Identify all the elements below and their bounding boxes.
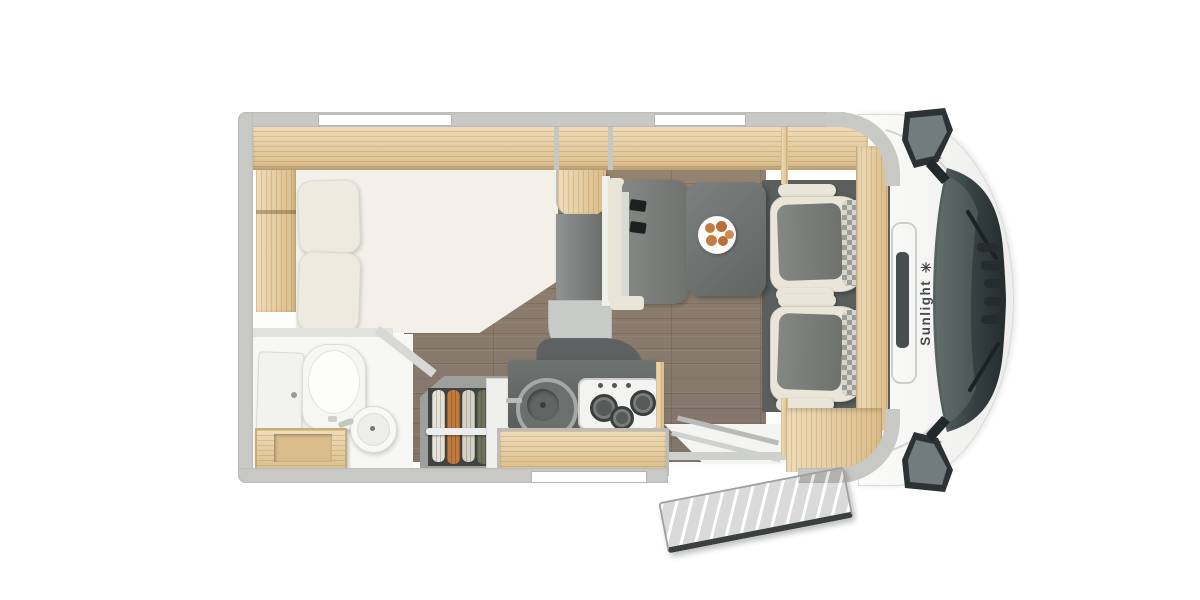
toilet-lid: [308, 350, 360, 414]
brand-lettering: Sunlight ✳: [904, 236, 948, 366]
hanging-clothes-orange: [447, 390, 460, 464]
locker-divider: [554, 126, 559, 170]
burner-icon: [610, 406, 634, 430]
bread-roll: [706, 235, 717, 246]
kitchen-end-divider: [656, 362, 664, 428]
locker-divider: [608, 126, 613, 170]
hanging-clothes-white: [432, 390, 445, 462]
vanity-recess: [274, 434, 332, 462]
bench-base: [610, 296, 644, 310]
pillow: [297, 179, 362, 255]
window-rear-top: [318, 114, 452, 126]
seatbelt-buckle-icon: [629, 199, 646, 212]
cab-overhang-frame: [856, 146, 888, 434]
rear-shelf-divider: [256, 210, 296, 214]
wall-left: [238, 112, 253, 483]
seat-cushion: [777, 313, 844, 391]
hob-knob: [612, 383, 617, 388]
toilet-flush-button: [328, 416, 337, 422]
entry-threshold: [664, 452, 788, 460]
brand-name: Sunlight: [918, 279, 933, 345]
sink-drain: [540, 402, 546, 408]
hanging-shelf: [556, 170, 606, 216]
hob-knob: [626, 383, 631, 388]
window-dinette-top: [654, 114, 746, 126]
sink-faucet-icon: [506, 398, 522, 403]
door-knob-icon: [291, 392, 297, 398]
pillow: [297, 251, 362, 333]
window-kitchen-bottom: [531, 471, 647, 483]
cab-frame-post: [781, 126, 788, 184]
washbasin-drain: [370, 426, 375, 431]
hanging-clothes-cream: [462, 390, 475, 462]
entry-door-open: [658, 466, 853, 553]
seatbelt-buckle-icon: [629, 221, 646, 234]
seat-cushion: [777, 203, 844, 281]
bread-roll: [705, 223, 715, 233]
motorhome-floorplan: Sunlight ✳: [0, 0, 1200, 600]
rear-wardrobe-column: [256, 168, 296, 312]
bathroom-wall: [253, 328, 393, 337]
overhead-lockers-top: [252, 126, 868, 170]
burner-icon: [630, 390, 656, 416]
hob-knob: [598, 383, 603, 388]
bread-roll: [718, 236, 728, 246]
seatbelt-rail: [622, 192, 629, 304]
brand-logo-icon: ✳: [918, 257, 933, 275]
tall-cabinet: [556, 214, 602, 306]
